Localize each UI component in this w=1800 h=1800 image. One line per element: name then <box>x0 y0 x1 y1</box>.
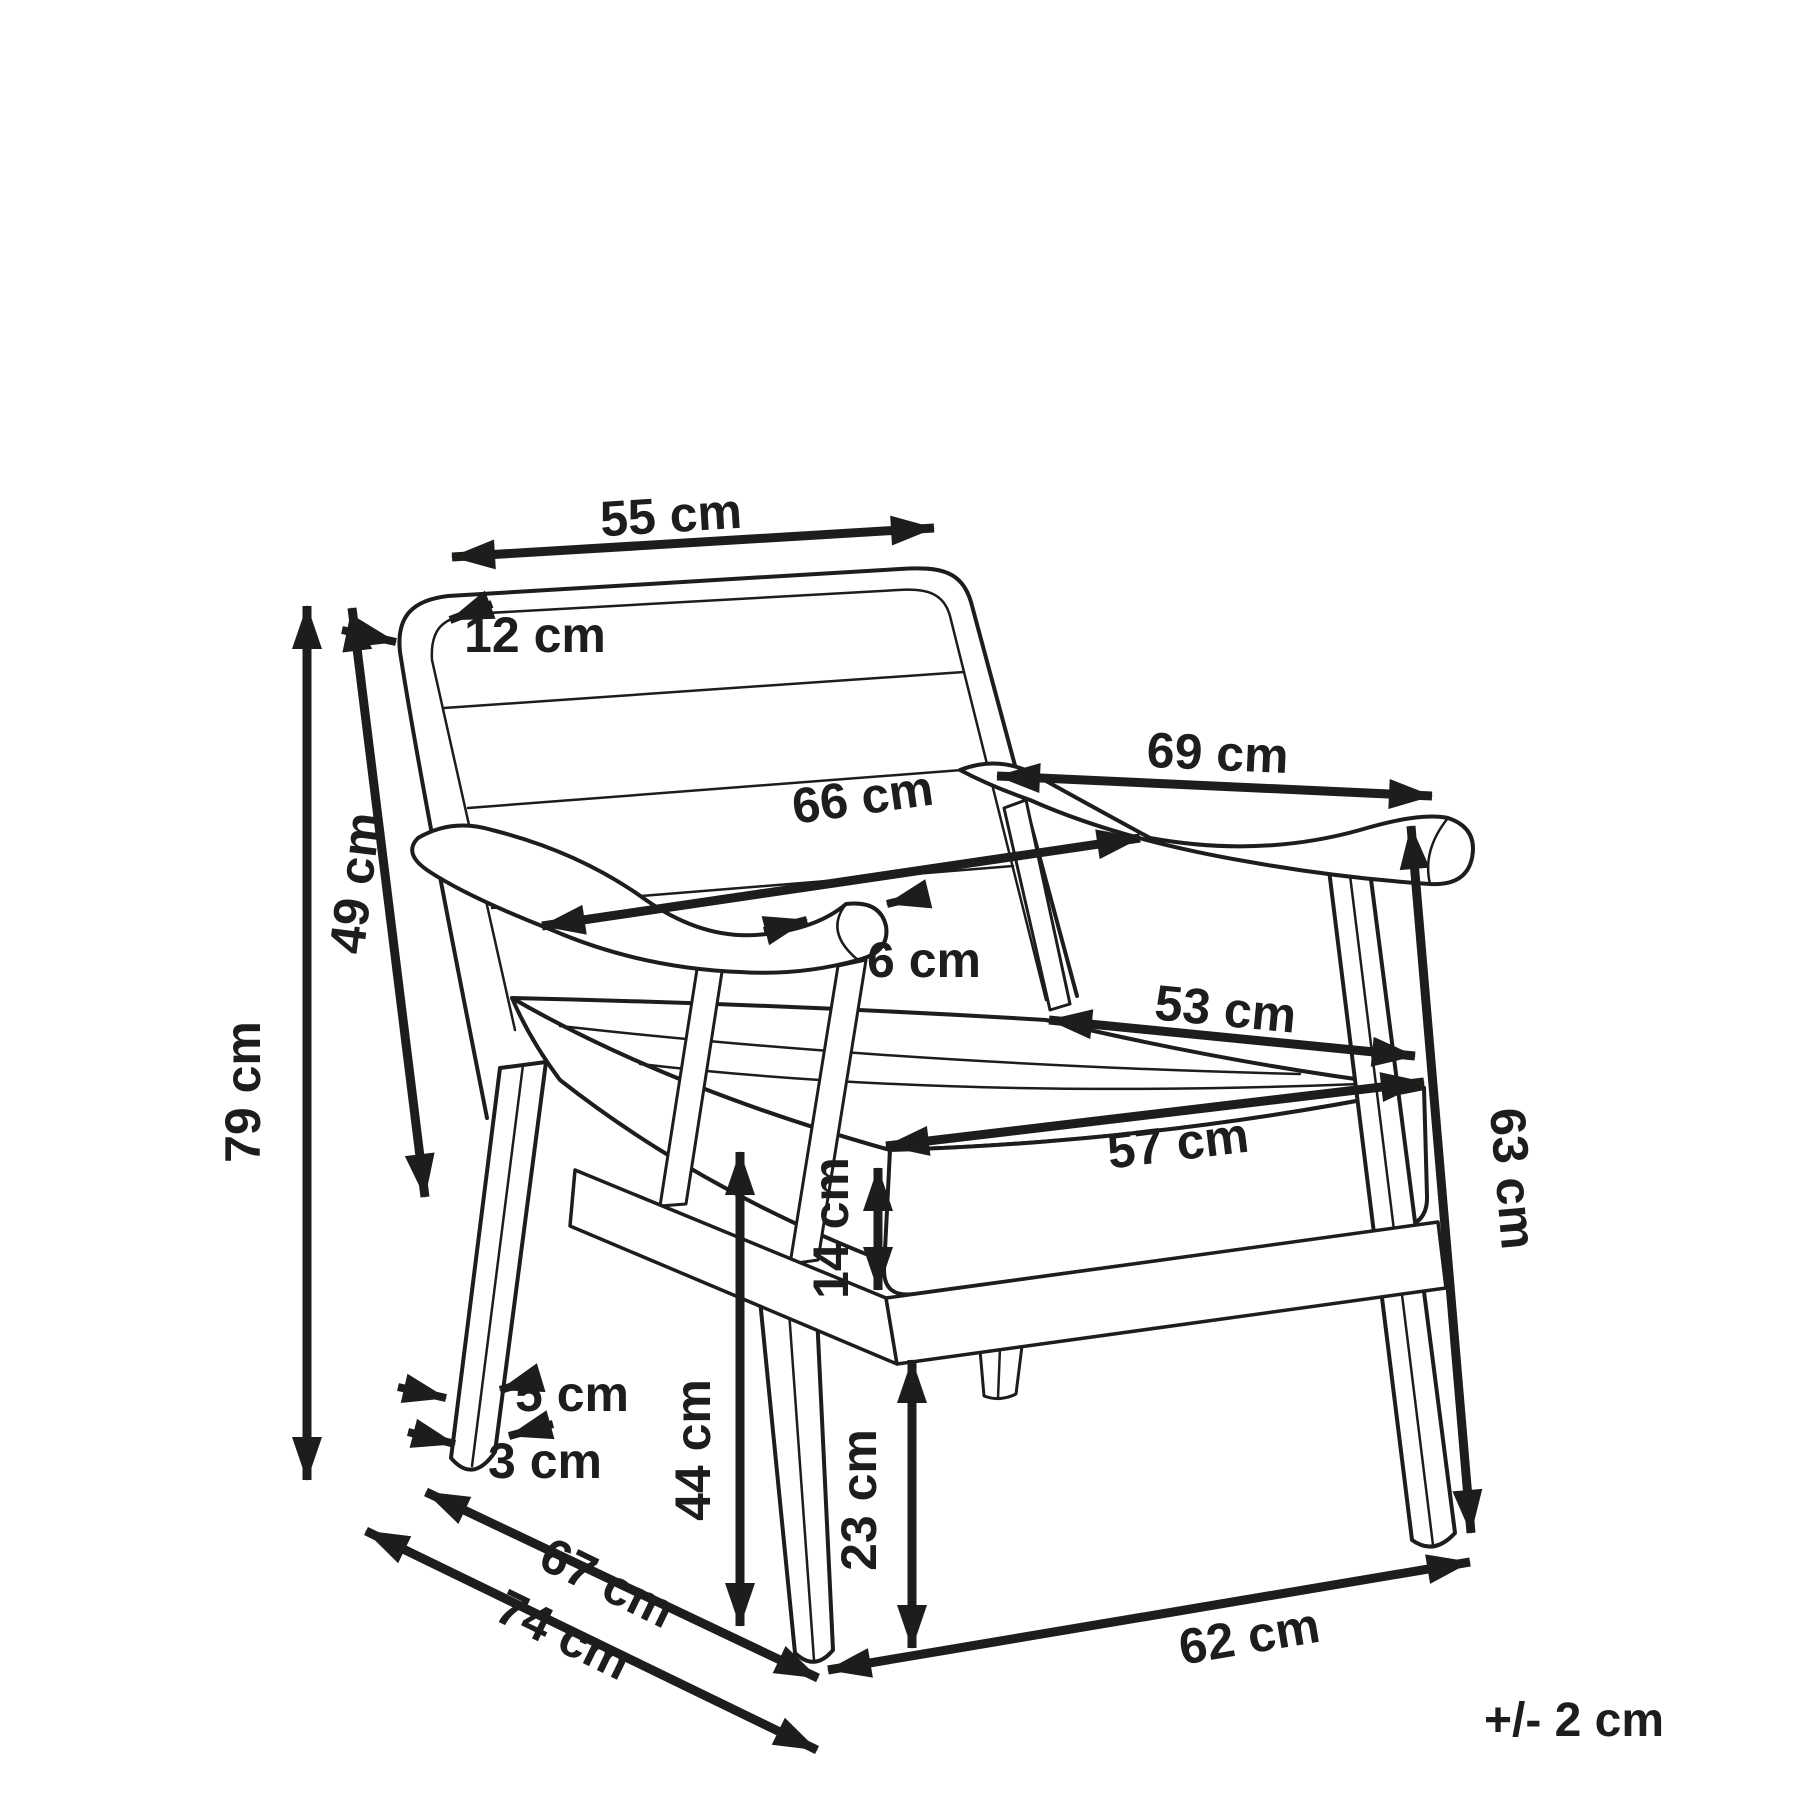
front-left-leg <box>760 1294 833 1662</box>
label-backrest-thickness: 12 cm <box>464 607 606 663</box>
label-leg-width-bottom: 3 cm <box>488 1433 602 1489</box>
label-leg-width-top: 5 cm <box>515 1366 629 1422</box>
arrow-leg-bottom-left <box>408 1432 455 1444</box>
armchair-line-drawing <box>399 568 1473 1661</box>
arrow-leg-top-left <box>398 1387 446 1398</box>
armchair-dimension-diagram: 55 cm 12 cm 49 cm 79 cm 69 cm 66 cm 6 cm… <box>0 0 1800 1800</box>
label-overall-height: 79 cm <box>215 1021 271 1163</box>
label-armrest-height: 63 cm <box>1479 1105 1547 1251</box>
label-cushion-thickness: 14 cm <box>803 1157 859 1299</box>
label-under-seat-clearance: 23 cm <box>831 1429 887 1571</box>
label-backrest-diagonal-height: 49 cm <box>319 809 392 957</box>
label-seat-height: 44 cm <box>665 1379 721 1521</box>
tolerance-note: +/- 2 cm <box>1484 1694 1664 1747</box>
label-backrest-top-width: 55 cm <box>598 483 743 548</box>
label-armrest-width: 6 cm <box>867 932 981 988</box>
label-armrest-front-to-back: 69 cm <box>1146 722 1290 784</box>
dimension-diagram-page: 55 cm 12 cm 49 cm 79 cm 69 cm 66 cm 6 cm… <box>0 0 1800 1800</box>
arrow-front-width <box>828 1562 1470 1670</box>
arrow-backrest-thickness-outer <box>342 630 396 642</box>
